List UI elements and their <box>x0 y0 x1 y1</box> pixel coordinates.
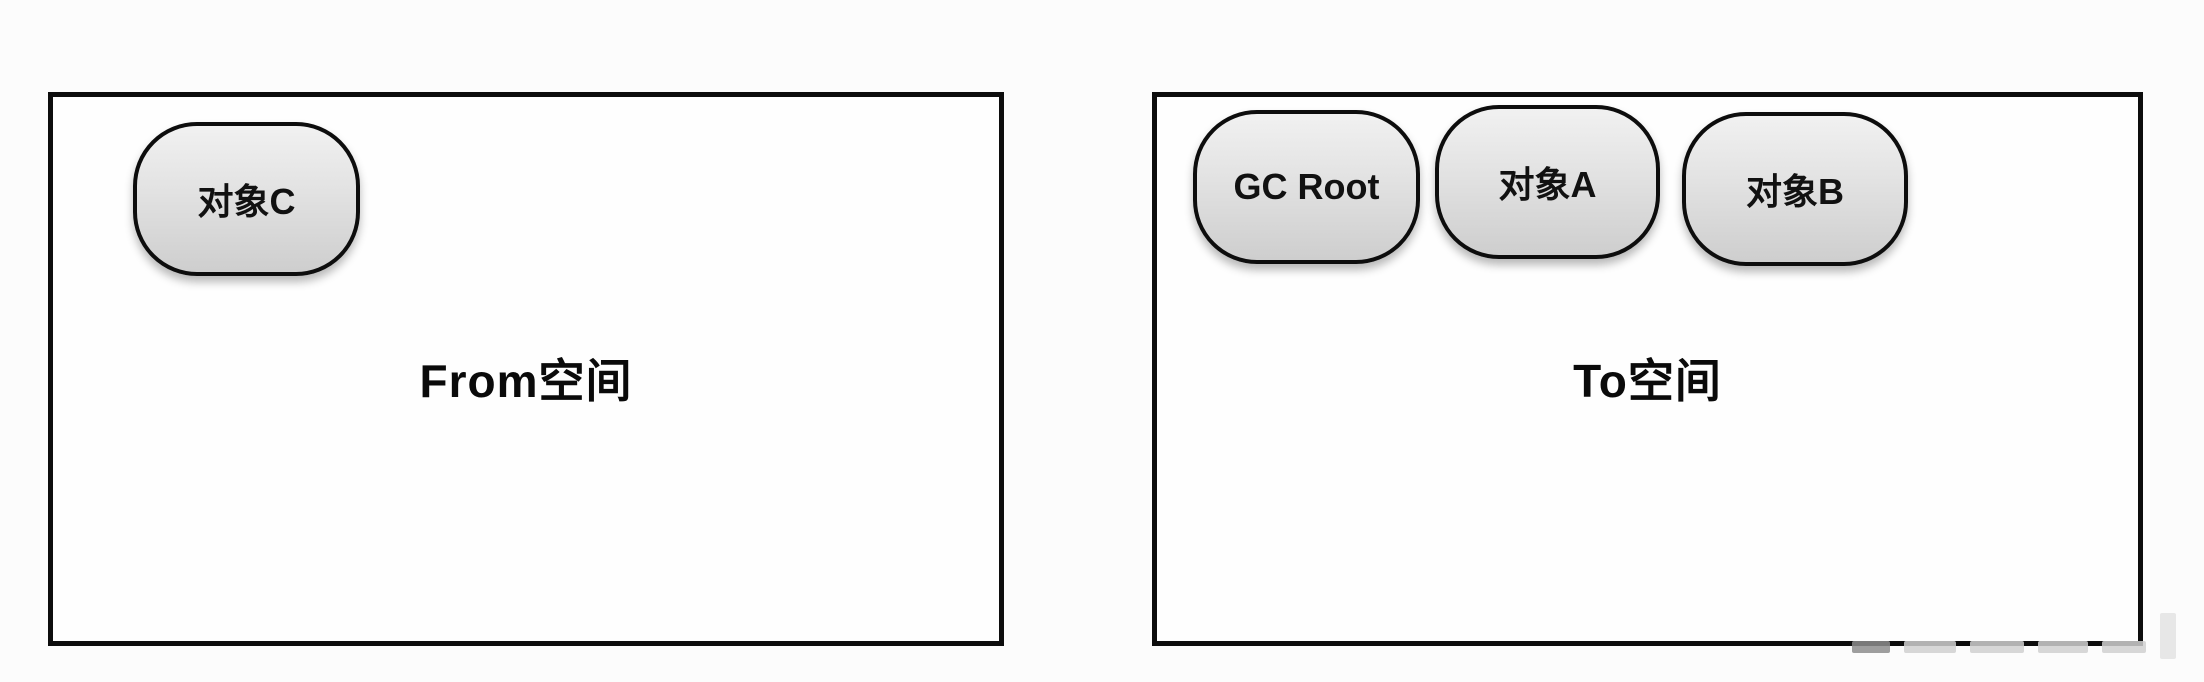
from-space-label: From空间 <box>53 345 999 411</box>
gc-copying-diagram: 对象C From空间 GC Root 对象A 对象B To空间 <box>0 0 2204 682</box>
watermark-fragment <box>2038 641 2088 653</box>
watermark-fragment <box>1904 641 1956 653</box>
watermark-fragment <box>2160 613 2176 659</box>
node-object-b-label: 对象B <box>1746 163 1844 215</box>
node-object-a-label: 对象A <box>1499 156 1597 208</box>
node-object-b: 对象B <box>1682 112 1908 266</box>
node-object-c: 对象C <box>133 122 360 276</box>
watermark-fragment <box>2102 641 2146 653</box>
node-gc-root: GC Root <box>1193 110 1420 264</box>
node-object-c-label: 对象C <box>198 173 296 225</box>
to-space-box: GC Root 对象A 对象B To空间 <box>1152 92 2143 646</box>
watermark-fragment <box>1970 641 2024 653</box>
node-gc-root-label: GC Root <box>1234 166 1380 208</box>
node-object-a: 对象A <box>1435 105 1660 259</box>
watermark <box>1852 632 2176 662</box>
watermark-fragment <box>1852 641 1890 653</box>
to-space-label: To空间 <box>1157 345 2138 411</box>
from-space-box: 对象C From空间 <box>48 92 1004 646</box>
